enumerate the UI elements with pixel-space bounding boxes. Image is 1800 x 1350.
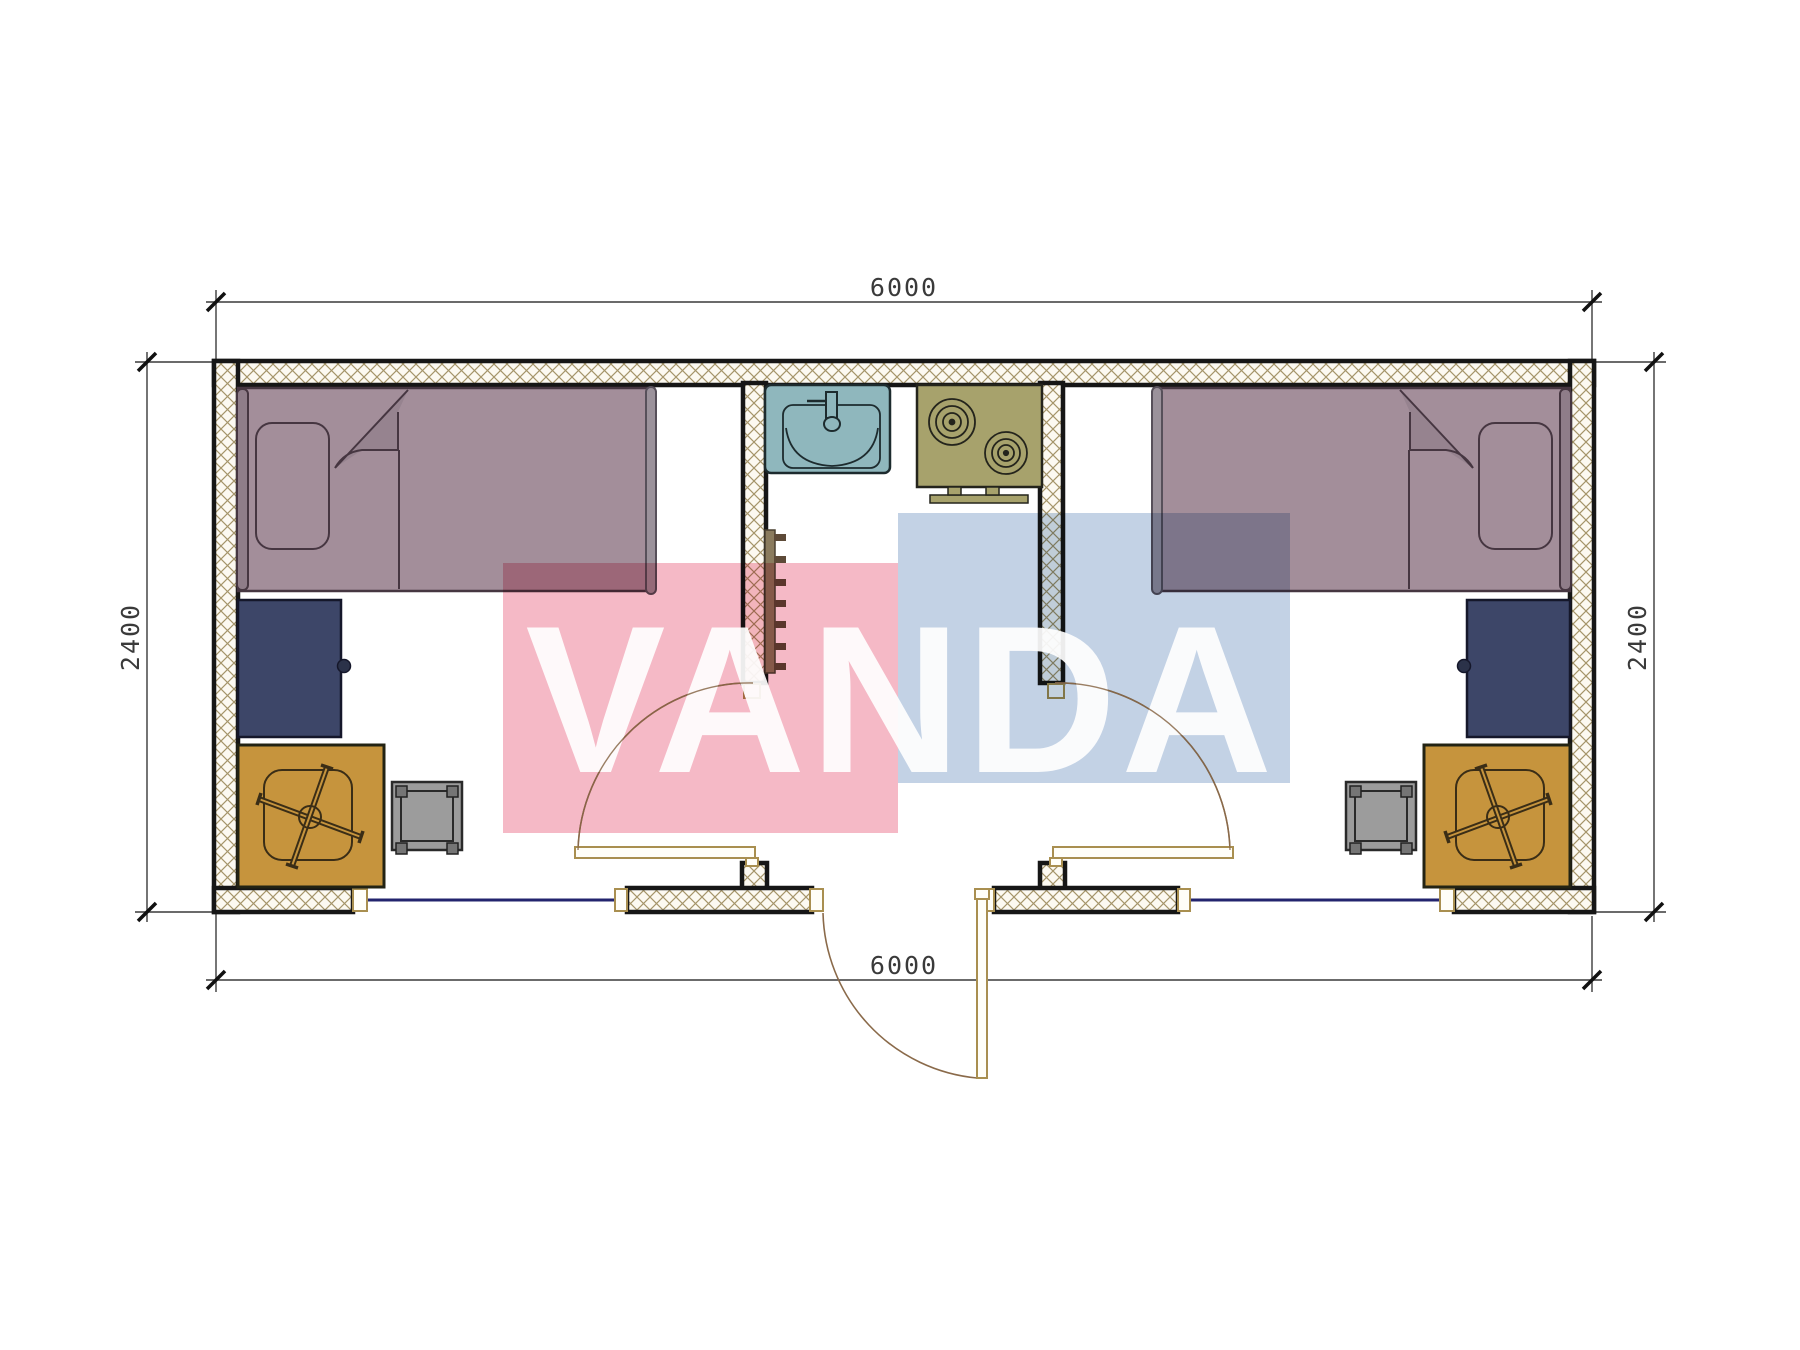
dimension-right: 2400: [1588, 352, 1666, 922]
sink-unit: [765, 385, 890, 473]
office-chair-desk: [238, 745, 384, 887]
ladder-rung: [774, 534, 786, 541]
stool-leg: [447, 786, 458, 797]
stool: [392, 782, 462, 854]
door-leaf: [1053, 847, 1233, 858]
door-swing-arc: [823, 913, 977, 1078]
desk: [238, 600, 351, 737]
door-leaf: [977, 893, 987, 1078]
desk-knob: [338, 660, 351, 673]
pillow: [1479, 423, 1552, 549]
bed-headboard: [1560, 389, 1571, 590]
stove-foot: [986, 487, 999, 495]
stove-unit: [917, 385, 1042, 503]
dimension-top: 6000: [206, 273, 1602, 359]
pillow: [256, 423, 329, 549]
bed-headboard: [237, 389, 248, 590]
wall-bottom-segment: [994, 888, 1178, 912]
dimension-left: 2400: [116, 352, 212, 922]
desk-top: [238, 600, 341, 737]
floor-plan-page: 6000 6000 2400 2400: [0, 0, 1800, 1350]
door-jamb: [810, 889, 823, 911]
bed: [237, 387, 656, 594]
burner: [985, 432, 1027, 474]
faucet: [826, 392, 837, 418]
window-jamb: [1440, 889, 1454, 911]
floor-plan-canvas: 6000 6000 2400 2400: [0, 0, 1800, 1350]
watermark-text: VANDA: [525, 582, 1276, 817]
wall-bottom-segment: [1454, 888, 1594, 912]
dimension-bottom: 6000: [206, 914, 1602, 992]
burner: [929, 399, 975, 445]
dimension-label-right: 2400: [1623, 603, 1652, 671]
door-hinge: [975, 889, 989, 899]
stool-leg: [396, 786, 407, 797]
office-chair-desk: [1424, 745, 1570, 887]
wall-right: [1570, 361, 1594, 912]
dimension-label-left: 2400: [116, 603, 145, 671]
ladder-rung: [774, 556, 786, 563]
stove-top: [917, 385, 1042, 487]
stove-foot: [948, 487, 961, 495]
stool-leg: [1401, 843, 1412, 854]
door-hinge: [1050, 858, 1062, 866]
window-jamb: [1178, 889, 1190, 911]
dimension-label-top: 6000: [870, 273, 938, 302]
watermark: VANDA: [503, 513, 1290, 850]
dimension-label-bottom: 6000: [870, 951, 938, 980]
window-jamb: [615, 889, 627, 911]
door-leaf: [575, 847, 755, 858]
wall-bottom-segment: [627, 888, 812, 912]
stool-leg: [1350, 786, 1361, 797]
stool-leg: [447, 843, 458, 854]
entrance-door: [823, 889, 989, 1078]
stool: [1346, 782, 1416, 854]
desk: [1458, 600, 1571, 737]
window-jamb: [353, 889, 367, 911]
faucet-knob: [824, 417, 840, 431]
stove-base: [930, 495, 1028, 503]
stool-leg: [1350, 843, 1361, 854]
desk-top: [1467, 600, 1570, 737]
desk-knob: [1458, 660, 1471, 673]
wall-top: [214, 361, 1594, 385]
stool-leg: [1401, 786, 1412, 797]
bed-footboard: [646, 387, 656, 594]
stool-leg: [396, 843, 407, 854]
door-hinge: [746, 858, 758, 866]
wall-left: [214, 361, 238, 912]
wall-bottom-segment: [214, 888, 353, 912]
